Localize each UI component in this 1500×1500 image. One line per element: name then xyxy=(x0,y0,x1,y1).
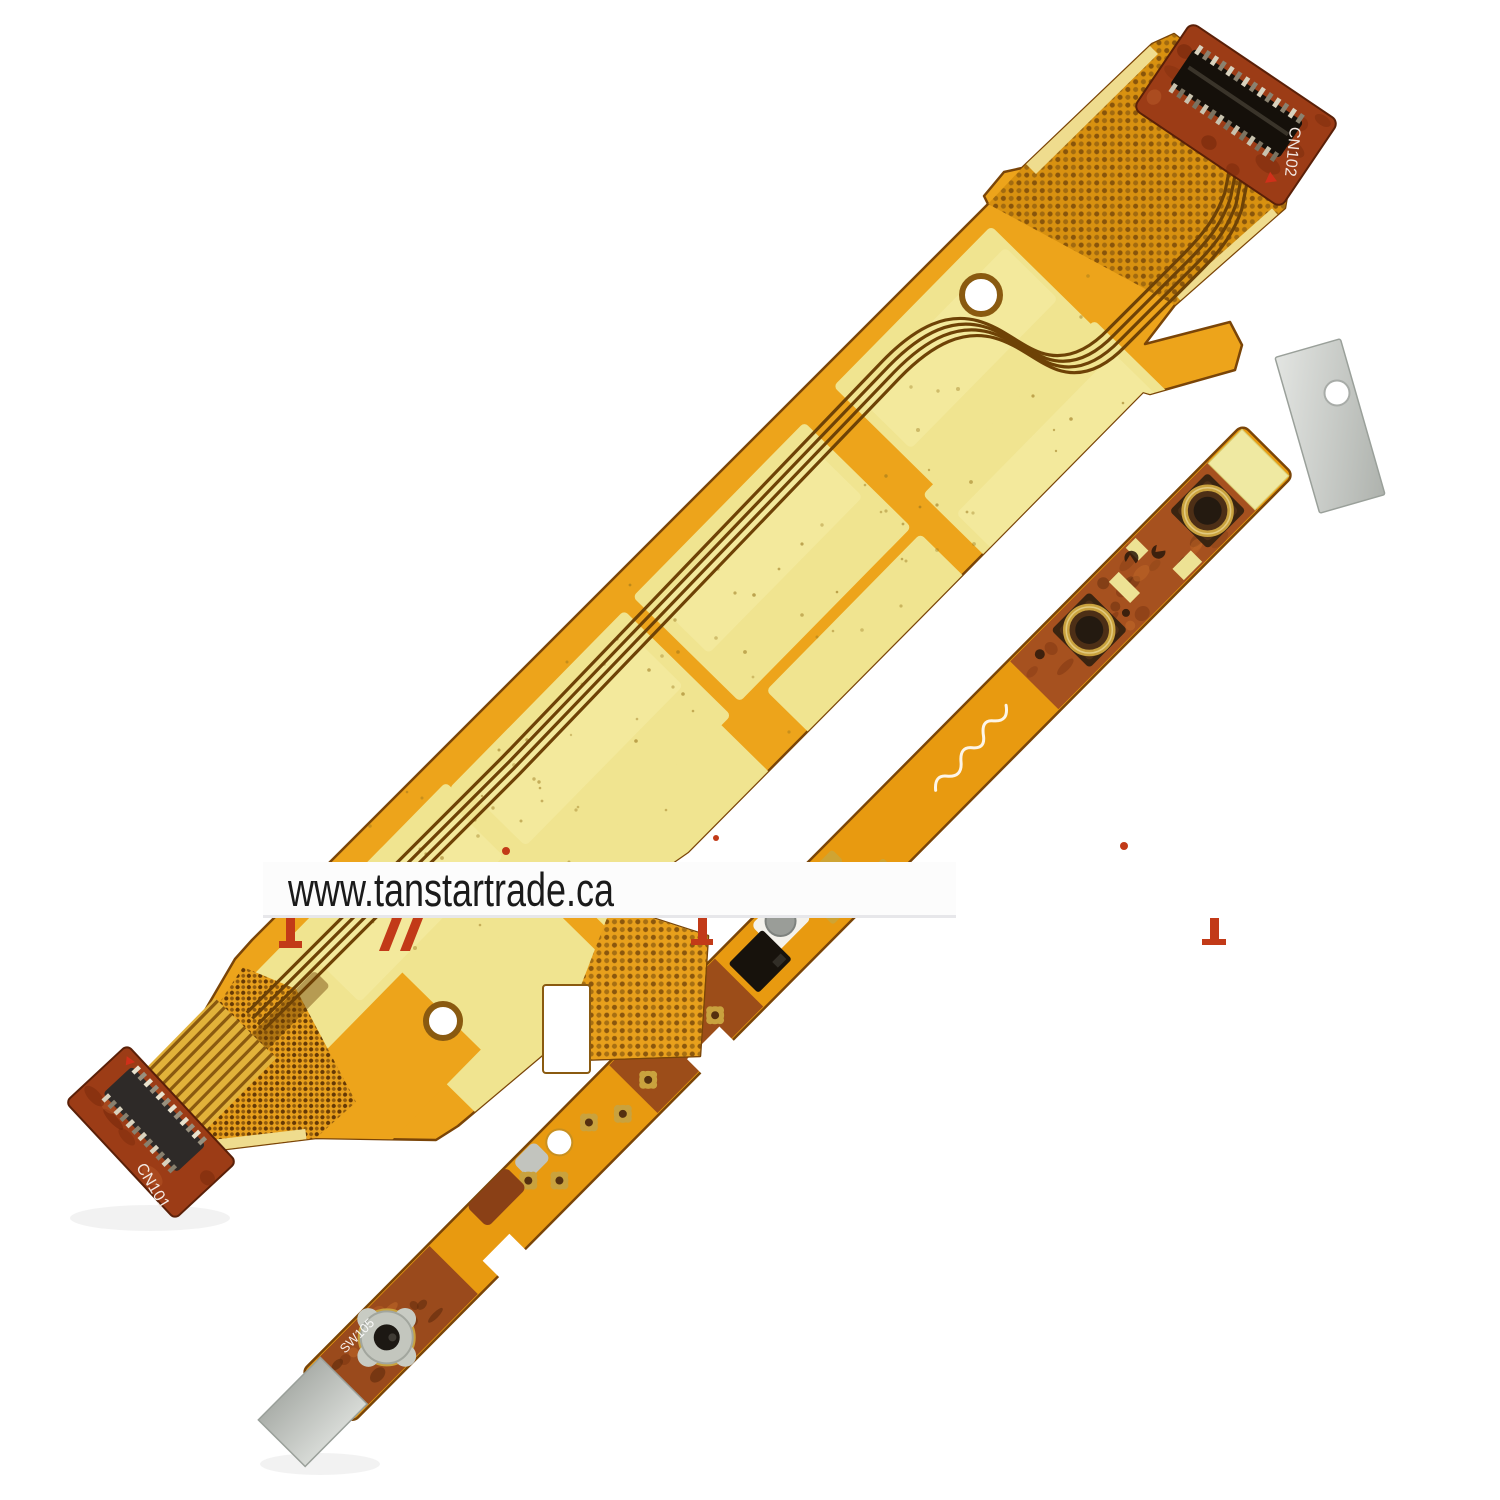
svg-text:www.tanstartrade.ca: www.tanstartrade.ca xyxy=(287,863,614,916)
